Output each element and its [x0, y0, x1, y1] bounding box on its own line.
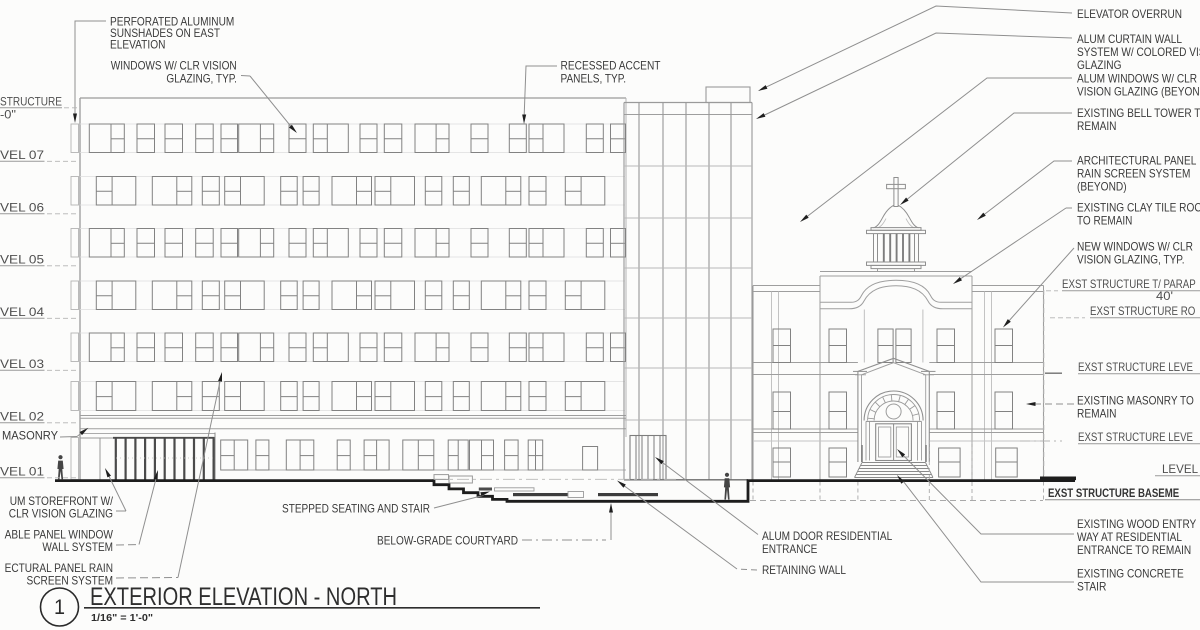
- svg-text:STAIR: STAIR: [1077, 580, 1107, 594]
- svg-text:VEL 02: VEL 02: [0, 410, 44, 424]
- svg-text:VEL 06: VEL 06: [0, 201, 44, 215]
- svg-text:ELEVATION: ELEVATION: [110, 37, 165, 51]
- svg-text:GLAZING, TYP.: GLAZING, TYP.: [166, 72, 237, 86]
- svg-text:VEL 05: VEL 05: [0, 253, 44, 267]
- svg-text:(BEYOND): (BEYOND): [1077, 180, 1127, 194]
- svg-text:EXST STRUCTURE BASEME: EXST STRUCTURE BASEME: [1048, 486, 1179, 500]
- svg-text:CLR VISION GLAZING: CLR VISION GLAZING: [9, 506, 113, 520]
- svg-text:VEL 04: VEL 04: [0, 305, 44, 319]
- svg-text:EXST STRUCTURE LEVE: EXST STRUCTURE LEVE: [1078, 430, 1193, 444]
- svg-text:VEL 07: VEL 07: [0, 148, 44, 162]
- svg-text:ENTRANCE: ENTRANCE: [762, 542, 817, 556]
- svg-text:EXST STRUCTURE RO: EXST STRUCTURE RO: [1090, 304, 1195, 318]
- svg-text:EXISTING BELL TOWER T: EXISTING BELL TOWER T: [1077, 106, 1200, 120]
- svg-text:VISION GLAZING, TYP.: VISION GLAZING, TYP.: [1077, 253, 1185, 267]
- svg-text:EXISTING MASONRY TO: EXISTING MASONRY TO: [1077, 394, 1194, 408]
- svg-text:WAY AT RESIDENTIAL: WAY AT RESIDENTIAL: [1077, 530, 1182, 544]
- svg-text:EXTERIOR ELEVATION - NORTH: EXTERIOR ELEVATION - NORTH: [90, 583, 397, 611]
- svg-text:LEVEL: LEVEL: [1162, 462, 1198, 476]
- svg-text:TO REMAIN: TO REMAIN: [1077, 214, 1132, 228]
- svg-text:VEL 03: VEL 03: [0, 357, 44, 371]
- svg-text:ENTRANCE TO REMAIN: ENTRANCE TO REMAIN: [1077, 543, 1191, 557]
- svg-text:EXISTING WOOD ENTRY: EXISTING WOOD ENTRY: [1077, 517, 1196, 531]
- svg-text:REMAIN: REMAIN: [1077, 407, 1117, 421]
- svg-text:NEW WINDOWS W/ CLR: NEW WINDOWS W/ CLR: [1077, 240, 1193, 254]
- svg-text:EXST STRUCTURE T/ PARAP: EXST STRUCTURE T/ PARAP: [1062, 277, 1196, 291]
- svg-text:ALUM DOOR RESIDENTIAL: ALUM DOOR RESIDENTIAL: [762, 529, 892, 543]
- svg-text:EXST STRUCTURE LEVE: EXST STRUCTURE LEVE: [1078, 360, 1193, 374]
- svg-text:MASONRY: MASONRY: [2, 428, 58, 442]
- svg-text:RECESSED ACCENT: RECESSED ACCENT: [561, 59, 662, 73]
- svg-text:PANELS, TYP.: PANELS, TYP.: [561, 72, 627, 86]
- svg-text:SYSTEM W/ COLORED VIS: SYSTEM W/ COLORED VIS: [1077, 45, 1200, 59]
- svg-text:STRUCTURE: STRUCTURE: [0, 95, 62, 109]
- svg-text:-0": -0": [0, 108, 16, 122]
- svg-text:RAIN SCREEN SYSTEM: RAIN SCREEN SYSTEM: [1077, 167, 1190, 181]
- svg-text:WALL SYSTEM: WALL SYSTEM: [42, 540, 113, 554]
- svg-text:ALUM CURTAIN WALL: ALUM CURTAIN WALL: [1077, 32, 1182, 46]
- svg-text:VISION GLAZING (BEYON: VISION GLAZING (BEYON: [1077, 85, 1200, 99]
- svg-text:RETAINING WALL: RETAINING WALL: [762, 563, 846, 577]
- svg-text:EXISTING CLAY TILE ROO: EXISTING CLAY TILE ROO: [1077, 201, 1200, 215]
- svg-text:1/16" = 1'-0": 1/16" = 1'-0": [91, 612, 153, 624]
- svg-text:VEL 01: VEL 01: [0, 465, 44, 479]
- svg-text:GLAZING: GLAZING: [1077, 58, 1122, 72]
- svg-text:1: 1: [54, 596, 65, 619]
- svg-text:BELOW-GRADE COURTYARD: BELOW-GRADE COURTYARD: [377, 534, 518, 548]
- svg-text:ELEVATOR OVERRUN: ELEVATOR OVERRUN: [1077, 7, 1182, 21]
- svg-text:STEPPED SEATING AND STAIR: STEPPED SEATING AND STAIR: [282, 502, 430, 516]
- svg-text:WINDOWS W/ CLR VISION: WINDOWS W/ CLR VISION: [111, 58, 237, 72]
- svg-text:EXISTING CONCRETE: EXISTING CONCRETE: [1077, 567, 1184, 581]
- svg-text:ARCHITECTURAL PANEL: ARCHITECTURAL PANEL: [1077, 154, 1197, 168]
- svg-text:ALUM WINDOWS W/ CLR: ALUM WINDOWS W/ CLR: [1077, 72, 1197, 86]
- svg-text:REMAIN: REMAIN: [1077, 119, 1117, 133]
